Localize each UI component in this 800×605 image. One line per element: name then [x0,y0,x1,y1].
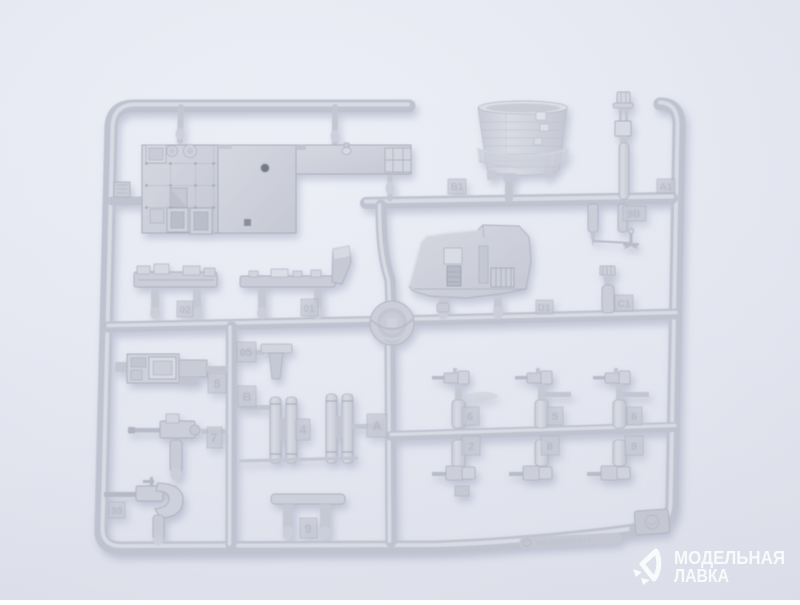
svg-text:2: 2 [468,441,474,453]
svg-text:B: B [243,390,252,404]
svg-text:9: 9 [631,441,637,453]
svg-text:4: 4 [300,423,307,437]
svg-text:7: 7 [211,431,218,445]
svg-text:5: 5 [552,411,558,423]
svg-text:A: A [373,419,382,433]
svg-text:8: 8 [214,377,221,391]
svg-text:05: 05 [240,347,252,359]
svg-text:B1: B1 [451,182,464,193]
svg-text:A1: A1 [660,182,673,193]
svg-text:02: 02 [179,305,191,316]
svg-text:МОДЕЛЬНАЯ: МОДЕЛЬНАЯ [674,548,785,568]
svg-text:9B: 9B [628,209,641,220]
svg-text:D1: D1 [538,303,551,314]
svg-text:C1: C1 [618,299,631,310]
svg-text:ЛАВКА: ЛАВКА [674,566,729,586]
svg-text:98: 98 [111,506,123,517]
svg-text:6: 6 [631,411,637,423]
svg-text:9: 9 [305,522,312,536]
svg-text:8: 8 [547,441,553,453]
svg-text:6: 6 [467,411,473,423]
svg-text:01: 01 [303,304,315,315]
